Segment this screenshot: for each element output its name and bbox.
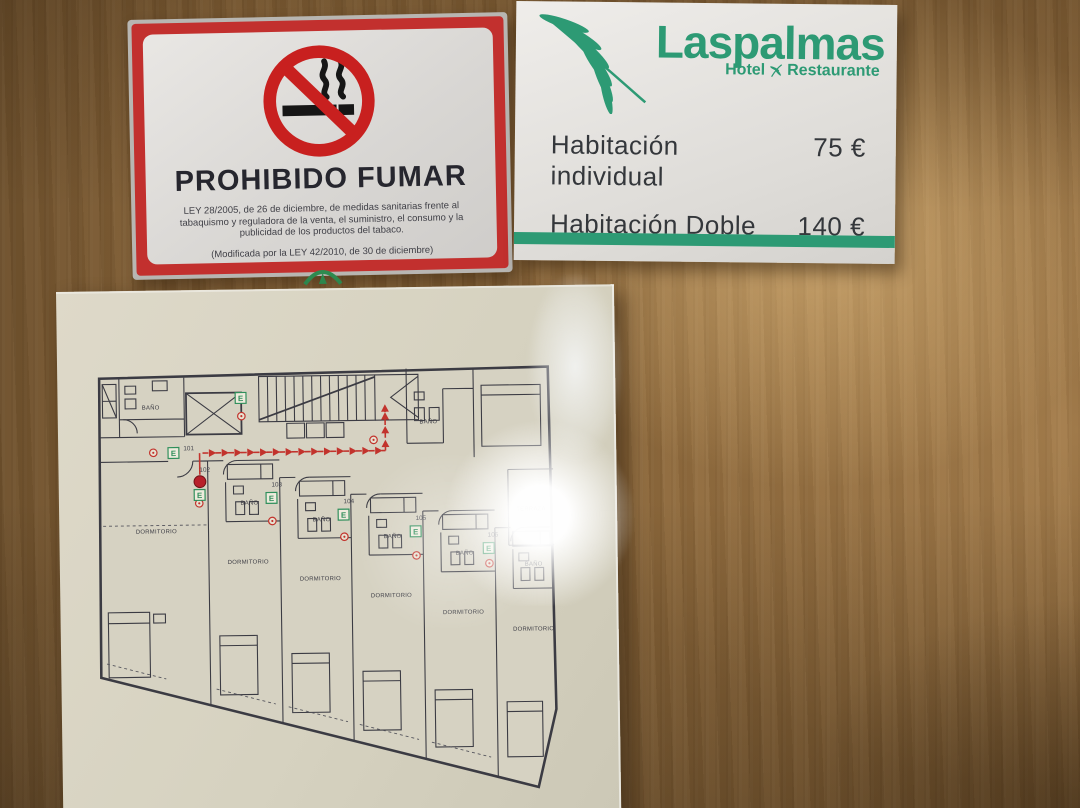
brand-subtitle-hotel: Hotel (725, 61, 765, 79)
room-label-terrace: TERRAZA (516, 506, 546, 512)
you-are-here-dot (194, 476, 206, 488)
palm-sprig-icon (768, 63, 784, 79)
brand-name: Laspalmas (656, 18, 884, 66)
rate-row-single: Habitación individual 75 € (550, 129, 866, 194)
card-accent-bar (514, 232, 895, 248)
floor-plan-drawing: BAÑO TERRAZA DORMITORIO (93, 361, 591, 804)
room-label-bath: BAÑO (419, 418, 437, 425)
evacuation-plan-tile: BAÑO TERRAZA DORMITORIO (56, 284, 621, 808)
exit-sign-letter: E (269, 494, 274, 503)
no-smoking-law-text: LEY 28/2005, de 26 de diciembre, de medi… (162, 200, 481, 241)
room-label-bedroom: DORMITORIO (371, 593, 412, 600)
no-smoking-amendment-text: (Modificada por la LEY 42/2010, de 30 de… (211, 244, 433, 260)
room-label-bedroom: DORMITORIO (300, 576, 341, 583)
exit-sign-letter: E (171, 449, 176, 458)
exit-sign-letter: E (413, 527, 418, 536)
room-number-101: 101 (183, 445, 194, 452)
no-smoking-title: PROHIBIDO FUMAR (174, 160, 467, 199)
hotel-rates-card: Laspalmas Hotel Restaurante Habitación (514, 1, 898, 264)
room-number-104: 104 (343, 498, 354, 505)
rate-label-single: Habitación individual (550, 129, 774, 193)
hotel-brand-row: Laspalmas Hotel Restaurante (515, 1, 897, 115)
room-label-bath: BAÑO (142, 404, 160, 411)
room-number-102: 102 (199, 467, 210, 474)
no-smoking-sign: PROHIBIDO FUMAR LEY 28/2005, de 26 de di… (127, 12, 512, 280)
room-number-106: 106 (488, 532, 499, 539)
exit-sign-letter: E (486, 544, 491, 553)
junta-arch-icon (299, 263, 345, 286)
room-label-bedroom: DORMITORIO (228, 559, 269, 566)
room-label-bedroom: DORMITORIO (443, 610, 484, 617)
room-label-bath: BAÑO (525, 560, 543, 567)
room-number-105: 105 (416, 515, 427, 522)
exit-sign-letter: E (197, 491, 202, 500)
palm-leaf-icon (533, 9, 659, 114)
room-label-bath: BAÑO (384, 533, 402, 540)
rate-price-single: 75 € (774, 132, 866, 164)
no-smoking-icon (260, 42, 378, 160)
room-label-bath: BAÑO (240, 499, 258, 506)
room-label-bedroom: DORMITORIO (136, 529, 177, 536)
room-label-bath: BAÑO (313, 516, 331, 523)
room-label-bedroom: DORMITORIO (513, 626, 554, 633)
exit-sign-letter: E (238, 394, 243, 403)
exit-sign-letter: E (341, 511, 346, 520)
room-number-103: 103 (271, 481, 282, 488)
photo-of-hotel-signs: PROHIBIDO FUMAR LEY 28/2005, de 26 de di… (0, 0, 1080, 808)
no-smoking-sign-red-frame: PROHIBIDO FUMAR LEY 28/2005, de 26 de di… (131, 16, 508, 276)
rates-list: Habitación individual 75 € Habitación Do… (514, 111, 896, 243)
room-label-bath: BAÑO (456, 550, 474, 557)
brand-subtitle-restaurante: Restaurante (787, 62, 880, 81)
